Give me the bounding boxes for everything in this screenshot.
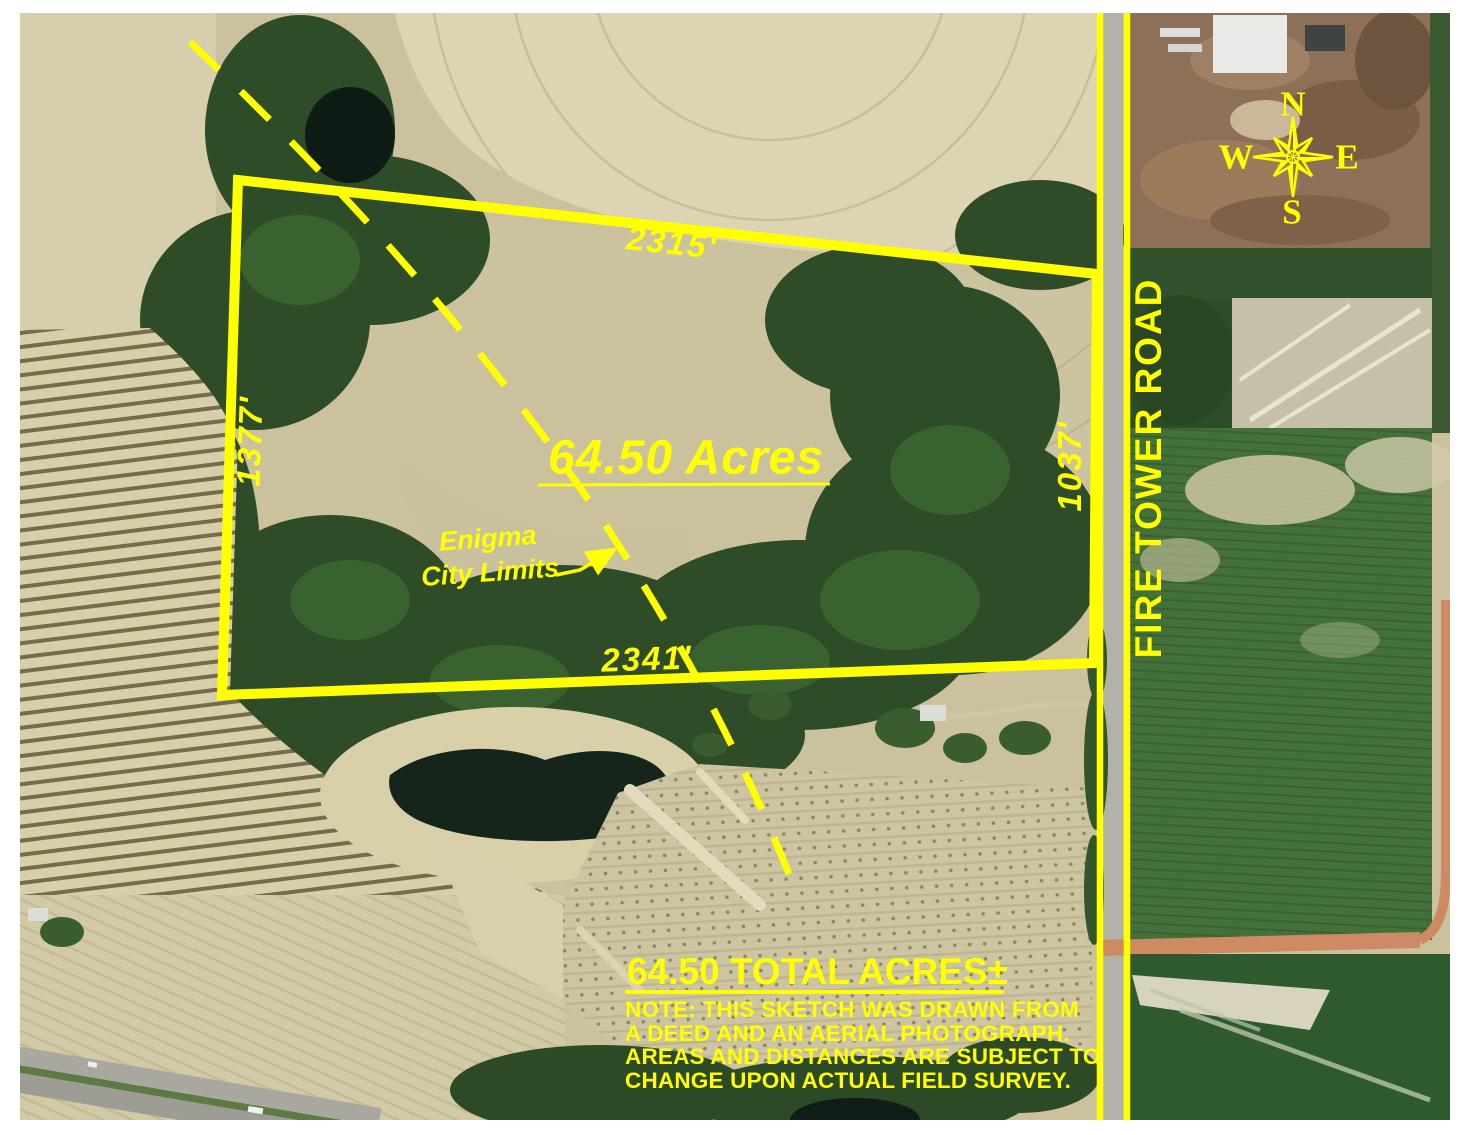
dark-shed xyxy=(1305,25,1345,51)
tree-cluster xyxy=(40,917,84,947)
total-acres-label: 64.50 TOTAL ACRES± xyxy=(627,951,1008,993)
note-line-4: CHANGE UPON ACTUAL FIELD SURVEY. xyxy=(625,1069,1101,1093)
dimension-bottom: 2341' xyxy=(601,638,694,679)
dirt-road xyxy=(1103,940,1420,948)
trailer xyxy=(1160,28,1200,37)
compass-north-label: N xyxy=(1280,85,1305,124)
survey-sketch: N E S W 2315' 1377' 1037' 2341' 64.50 Ac… xyxy=(0,0,1469,1135)
farm-building xyxy=(28,908,48,921)
note-line-2: A DEED AND AN AERIAL PHOTOGRAPH. xyxy=(625,1022,1101,1046)
acreage-label: 64.50 Acres xyxy=(548,431,824,486)
dimension-right: 1037' xyxy=(1051,420,1089,511)
house xyxy=(920,705,946,721)
note-line-1: NOTE: THIS SKETCH WAS DRAWN FROM xyxy=(625,998,1101,1022)
city-limits-label: Enigma City Limits xyxy=(418,518,560,595)
compass-south-label: S xyxy=(1282,193,1301,232)
road-name-label: FIRE TOWER ROAD xyxy=(1128,278,1170,659)
compass-east-label: E xyxy=(1335,138,1358,177)
compass-west-label: W xyxy=(1219,138,1254,177)
survey-note: NOTE: THIS SKETCH WAS DRAWN FROM A DEED … xyxy=(625,998,1101,1092)
warehouse-building xyxy=(1213,15,1287,73)
trailer xyxy=(1168,44,1202,52)
right-edge-trees xyxy=(1430,13,1450,433)
note-line-3: AREAS AND DISTANCES ARE SUBJECT TO xyxy=(625,1045,1101,1069)
dimension-left: 1377' xyxy=(229,395,270,488)
